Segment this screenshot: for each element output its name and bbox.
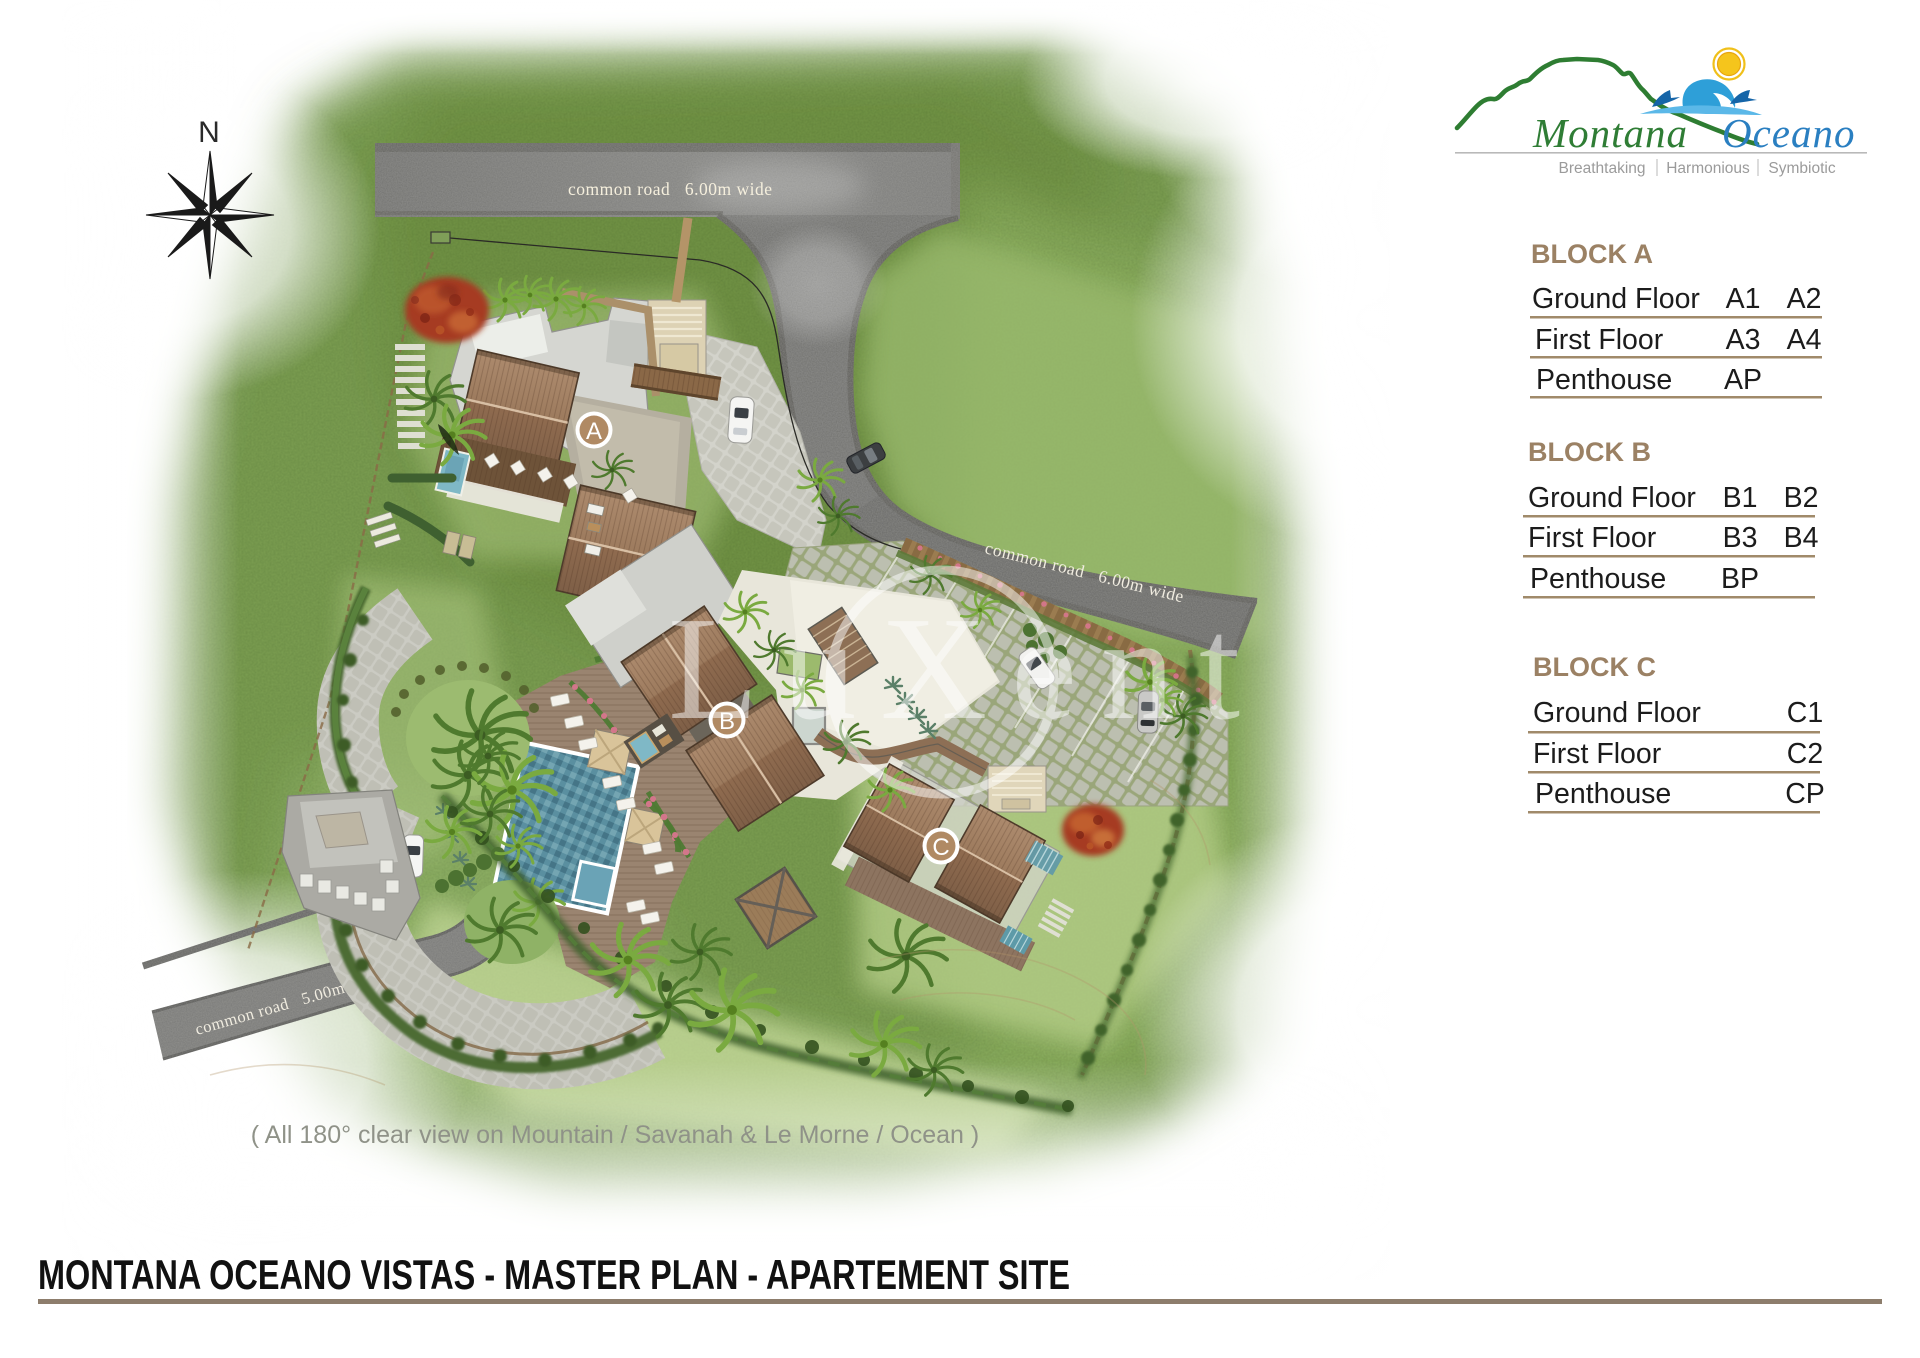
svg-text:A4: A4 [1787,324,1822,356]
svg-text:N: N [198,116,220,149]
svg-text:Ground Floor: Ground Floor [1528,482,1696,514]
svg-text:B2: B2 [1784,482,1819,514]
svg-text:( All 180° clear view on Mount: ( All 180° clear view on Mountain / Sava… [251,1121,979,1149]
svg-text:Penthouse: Penthouse [1536,364,1672,396]
svg-text:BP: BP [1721,563,1759,595]
svg-text:First Floor: First Floor [1533,738,1662,770]
svg-text:Penthouse: Penthouse [1535,778,1671,810]
svg-text:LuXent: LuXent [668,587,1264,751]
svg-text:AP: AP [1724,364,1762,396]
svg-text:Oceano: Oceano [1722,110,1856,156]
svg-text:A1: A1 [1726,283,1761,315]
svg-text:A: A [586,418,602,445]
svg-text:C1: C1 [1787,697,1823,729]
svg-text:Harmonious: Harmonious [1666,160,1750,177]
svg-text:A2: A2 [1787,283,1822,315]
svg-text:BLOCK A: BLOCK A [1531,239,1653,269]
svg-text:Ground Floor: Ground Floor [1533,697,1701,729]
svg-text:Ground Floor: Ground Floor [1532,283,1700,315]
svg-text:C2: C2 [1787,738,1823,770]
svg-text:common road 6.00m wide: common road 6.00m wide [568,179,772,199]
svg-text:Breathtaking: Breathtaking [1558,160,1645,177]
svg-text:BLOCK B: BLOCK B [1528,437,1651,467]
svg-text:CP: CP [1785,778,1825,810]
svg-text:Symbiotic: Symbiotic [1768,160,1835,177]
svg-text:Montana: Montana [1532,110,1688,156]
svg-text:BLOCK C: BLOCK C [1533,652,1656,682]
svg-text:B1: B1 [1723,482,1758,514]
svg-text:C: C [932,834,949,861]
svg-text:B4: B4 [1784,522,1819,554]
svg-text:Penthouse: Penthouse [1530,563,1666,595]
svg-text:MONTANA OCEANO VISTAS - MASTER: MONTANA OCEANO VISTAS - MASTER PLAN - AP… [38,1251,1070,1298]
svg-text:B3: B3 [1723,522,1758,554]
svg-text:First Floor: First Floor [1528,522,1657,554]
svg-text:A3: A3 [1726,324,1761,356]
svg-text:First Floor: First Floor [1535,324,1664,356]
